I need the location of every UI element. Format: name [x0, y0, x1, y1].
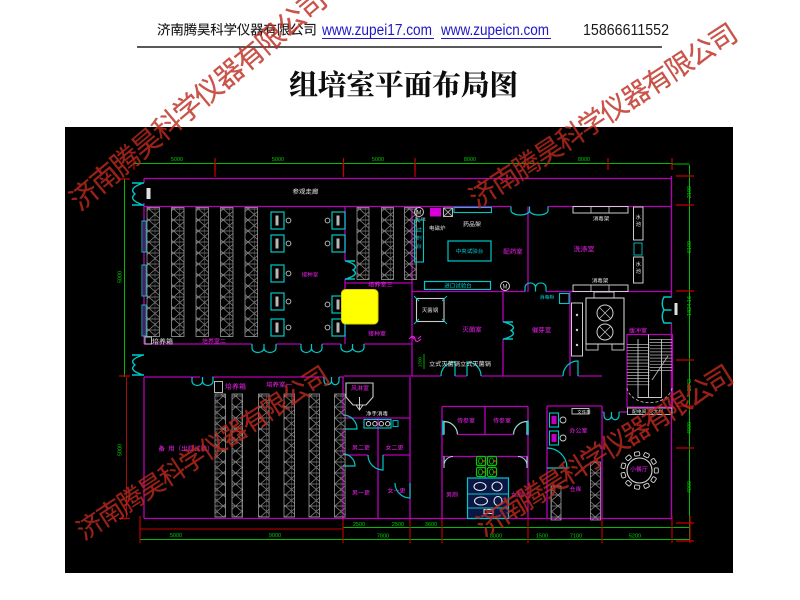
- svg-text:2100: 2100: [687, 186, 693, 198]
- svg-text:5000: 5000: [118, 444, 124, 456]
- svg-text:15866611552: 15866611552: [583, 22, 669, 39]
- svg-text:1824.16: 1824.16: [687, 296, 693, 316]
- svg-text:1500: 1500: [418, 356, 423, 367]
- svg-text:8000: 8000: [578, 157, 590, 163]
- svg-text:8000: 8000: [490, 534, 502, 540]
- svg-text:1500: 1500: [536, 534, 548, 540]
- svg-text:5000: 5000: [118, 271, 124, 283]
- svg-text:M: M: [503, 285, 508, 291]
- svg-text:7800: 7800: [377, 534, 389, 540]
- svg-text:6100: 6100: [687, 241, 693, 253]
- svg-text:7100: 7100: [570, 534, 582, 540]
- svg-text:8000: 8000: [464, 157, 476, 163]
- svg-text:5000: 5000: [170, 533, 182, 539]
- svg-text:2500: 2500: [392, 522, 404, 528]
- svg-text:5000: 5000: [372, 157, 384, 163]
- svg-text:5000: 5000: [272, 157, 284, 163]
- svg-text:www.zupeicn.com: www.zupeicn.com: [440, 22, 549, 39]
- svg-text:4000: 4000: [687, 422, 693, 434]
- svg-text:www.zupei17.com: www.zupei17.com: [321, 22, 432, 39]
- svg-text:5200: 5200: [629, 534, 641, 540]
- svg-text:4000: 4000: [687, 481, 693, 493]
- svg-text:5000: 5000: [171, 157, 183, 163]
- svg-text:9000: 9000: [269, 533, 281, 539]
- svg-text:3600: 3600: [425, 522, 437, 528]
- svg-text:2500: 2500: [353, 522, 365, 528]
- svg-text:M: M: [417, 211, 422, 217]
